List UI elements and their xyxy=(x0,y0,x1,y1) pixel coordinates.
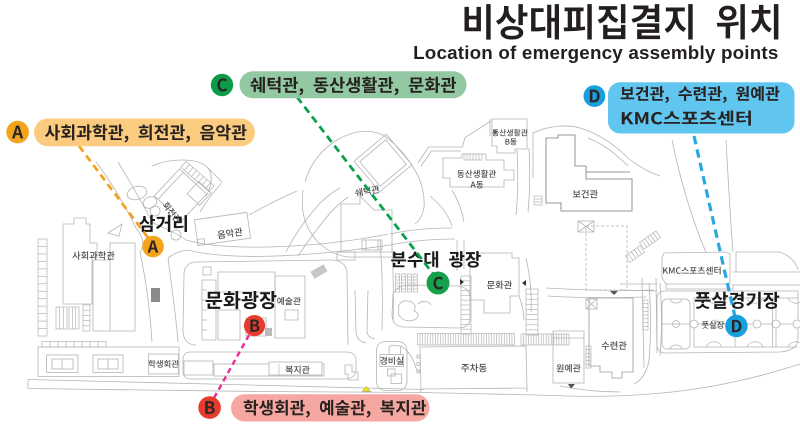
svg-text:Location of emergency assembly: Location of emergency assembly points xyxy=(413,42,778,63)
